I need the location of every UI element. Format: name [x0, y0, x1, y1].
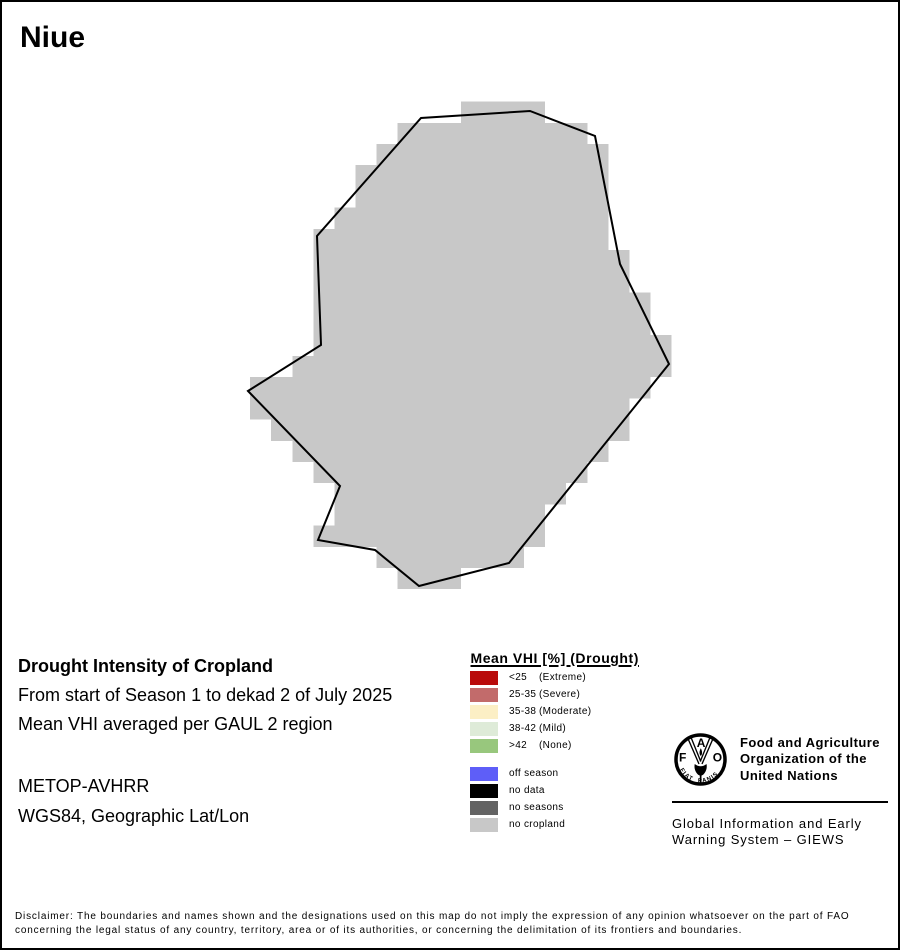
svg-text:A: A [697, 735, 706, 749]
svg-text:O: O [713, 750, 722, 764]
svg-text:F: F [679, 750, 686, 764]
